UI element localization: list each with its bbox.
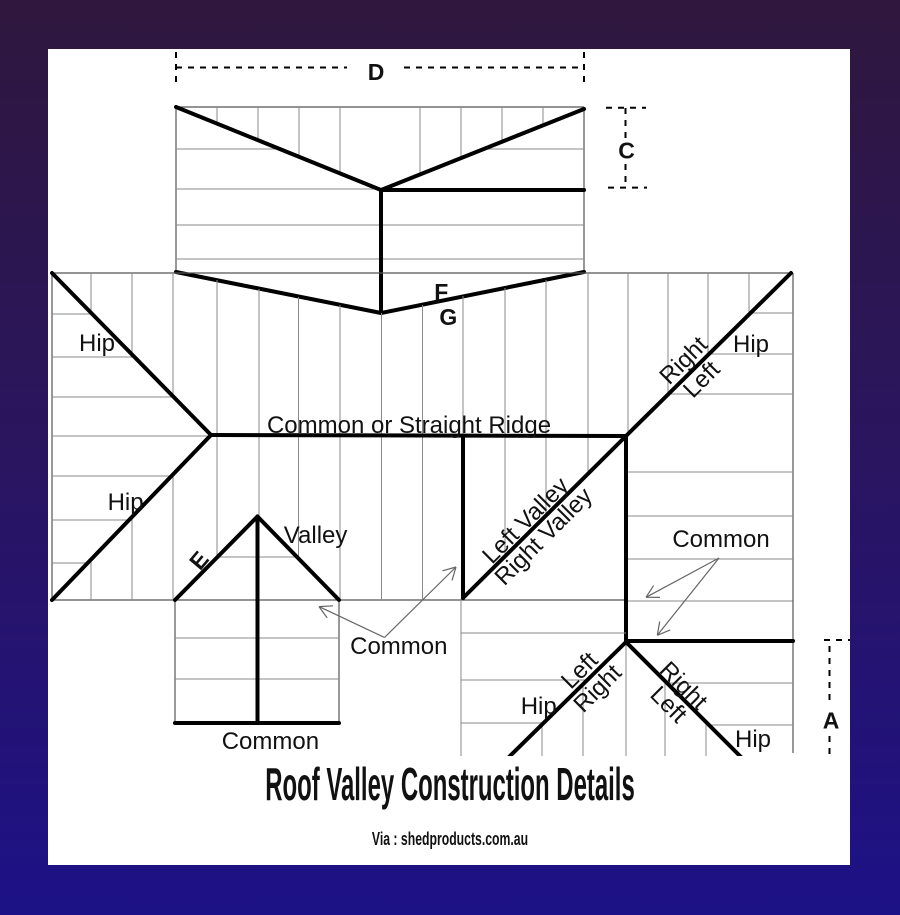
svg-text:Hip: Hip xyxy=(108,489,144,516)
svg-text:A: A xyxy=(823,708,840,734)
svg-text:Valley: Valley xyxy=(284,522,348,549)
svg-text:F: F xyxy=(434,279,448,305)
svg-text:Common: Common xyxy=(350,633,447,660)
svg-text:Common: Common xyxy=(222,728,319,755)
svg-text:Hip: Hip xyxy=(521,693,557,720)
svg-text:Common or Straight Ridge: Common or Straight Ridge xyxy=(267,412,551,439)
svg-text:G: G xyxy=(439,304,457,330)
svg-text:C: C xyxy=(618,138,635,164)
svg-text:Hip: Hip xyxy=(79,330,115,357)
svg-text:Common: Common xyxy=(672,526,769,553)
svg-text:E: E xyxy=(184,546,214,574)
svg-text:Hip: Hip xyxy=(733,331,769,358)
svg-text:Hip: Hip xyxy=(735,726,771,753)
svg-text:D: D xyxy=(368,59,385,85)
